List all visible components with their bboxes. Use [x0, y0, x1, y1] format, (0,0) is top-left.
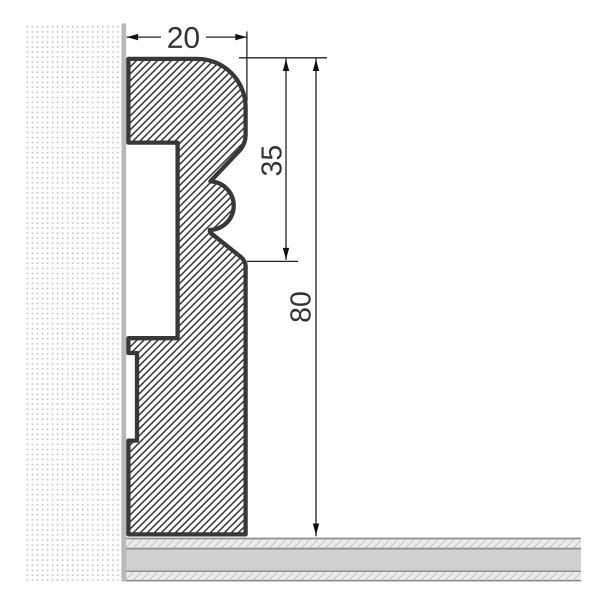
svg-text:35: 35: [257, 145, 289, 177]
svg-text:80: 80: [285, 291, 317, 323]
svg-text:20: 20: [167, 22, 200, 55]
